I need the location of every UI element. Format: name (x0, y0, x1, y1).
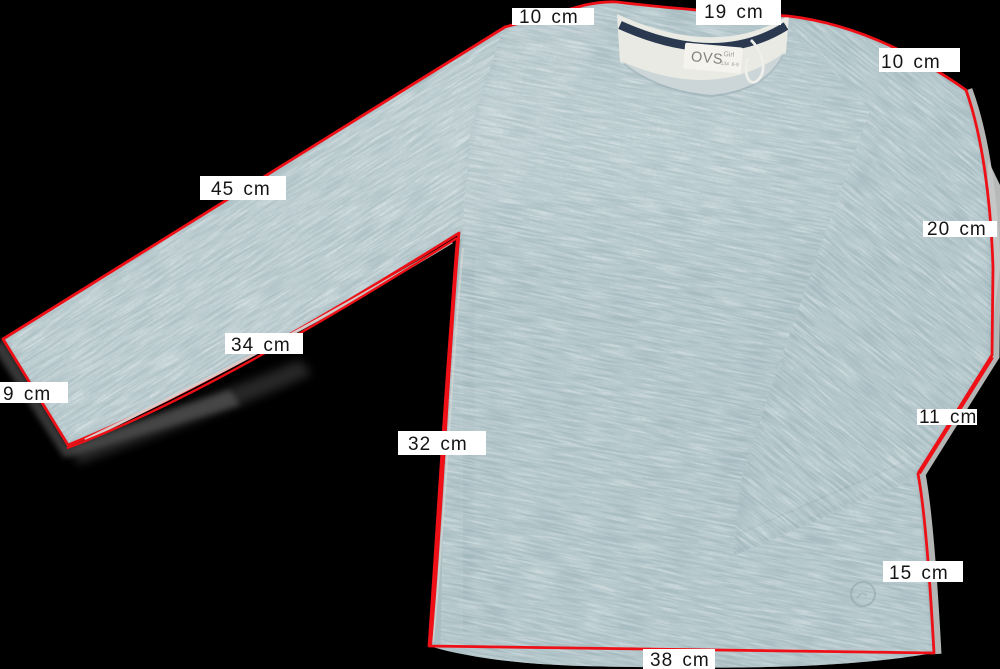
svg-text:OVS: OVS (690, 49, 723, 68)
svg-text:11 cm: 11 cm (919, 407, 977, 428)
svg-text:134: 134 (720, 61, 729, 68)
svg-text:45 cm: 45 cm (211, 179, 271, 200)
svg-text:15 cm: 15 cm (889, 563, 949, 584)
svg-text:Girl: Girl (723, 51, 735, 59)
svg-text:19 cm: 19 cm (704, 2, 764, 23)
svg-text:8-9: 8-9 (731, 62, 739, 69)
svg-text:20 cm: 20 cm (927, 219, 987, 240)
svg-text:9 cm: 9 cm (3, 384, 51, 405)
svg-text:10 cm: 10 cm (881, 52, 941, 73)
svg-text:10 cm: 10 cm (519, 7, 579, 28)
svg-text:32 cm: 32 cm (408, 434, 468, 455)
svg-text:34 cm: 34 cm (231, 335, 291, 356)
svg-text:38 cm: 38 cm (650, 650, 710, 669)
